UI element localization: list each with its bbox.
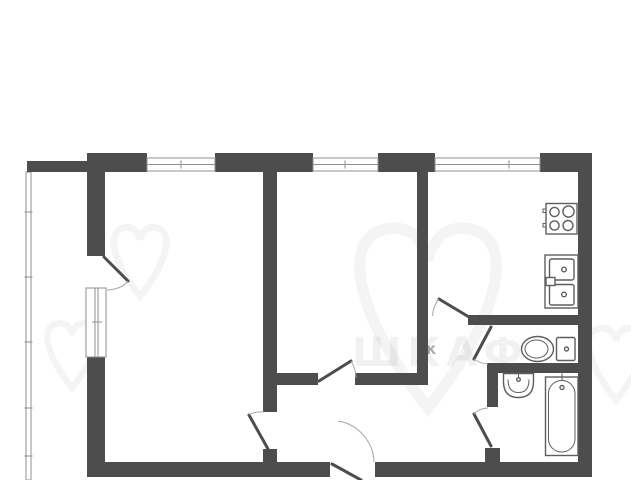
bathroom-door xyxy=(474,408,491,446)
stove-icon xyxy=(543,204,577,235)
floor-plan-page: ШКАФ к xyxy=(0,0,631,480)
window-balcony-wall xyxy=(86,288,106,357)
floor-plan-canvas: ШКАФ к xyxy=(0,0,631,480)
wall-bedroom-kitchen xyxy=(417,172,428,385)
wall-top xyxy=(215,153,313,172)
kitchen-sink-icon xyxy=(545,255,578,308)
wall-bedroom-south xyxy=(355,373,428,385)
walls xyxy=(27,153,592,477)
window-bedroom xyxy=(313,158,378,171)
living-room-door xyxy=(249,412,268,449)
wall-room-divider xyxy=(263,172,277,412)
balcony-outline xyxy=(25,172,33,480)
wall-bedroom-south xyxy=(277,373,318,385)
wall-bath-stub xyxy=(485,448,500,462)
wall-left xyxy=(87,153,105,256)
wall-room-divider-stub xyxy=(263,449,277,462)
watermark-pin-icon xyxy=(589,328,631,400)
wall-balcony-top xyxy=(27,161,88,172)
toilet-icon xyxy=(522,337,576,362)
wall-bottom xyxy=(87,462,330,477)
window-living xyxy=(147,158,215,171)
wall-kitchen-south xyxy=(468,315,578,325)
kitchen-door xyxy=(433,299,470,317)
wall-left xyxy=(87,357,105,462)
bathtub-icon xyxy=(546,374,579,456)
windows xyxy=(86,158,540,357)
bedroom-door xyxy=(319,361,356,381)
window-kitchen xyxy=(435,158,540,171)
wall-right xyxy=(578,153,592,477)
entry-door xyxy=(332,421,374,480)
wall-bottom xyxy=(375,462,592,477)
wash-basin-icon xyxy=(504,374,534,398)
wall-wc-bath xyxy=(487,363,578,373)
wall-top xyxy=(378,153,435,172)
